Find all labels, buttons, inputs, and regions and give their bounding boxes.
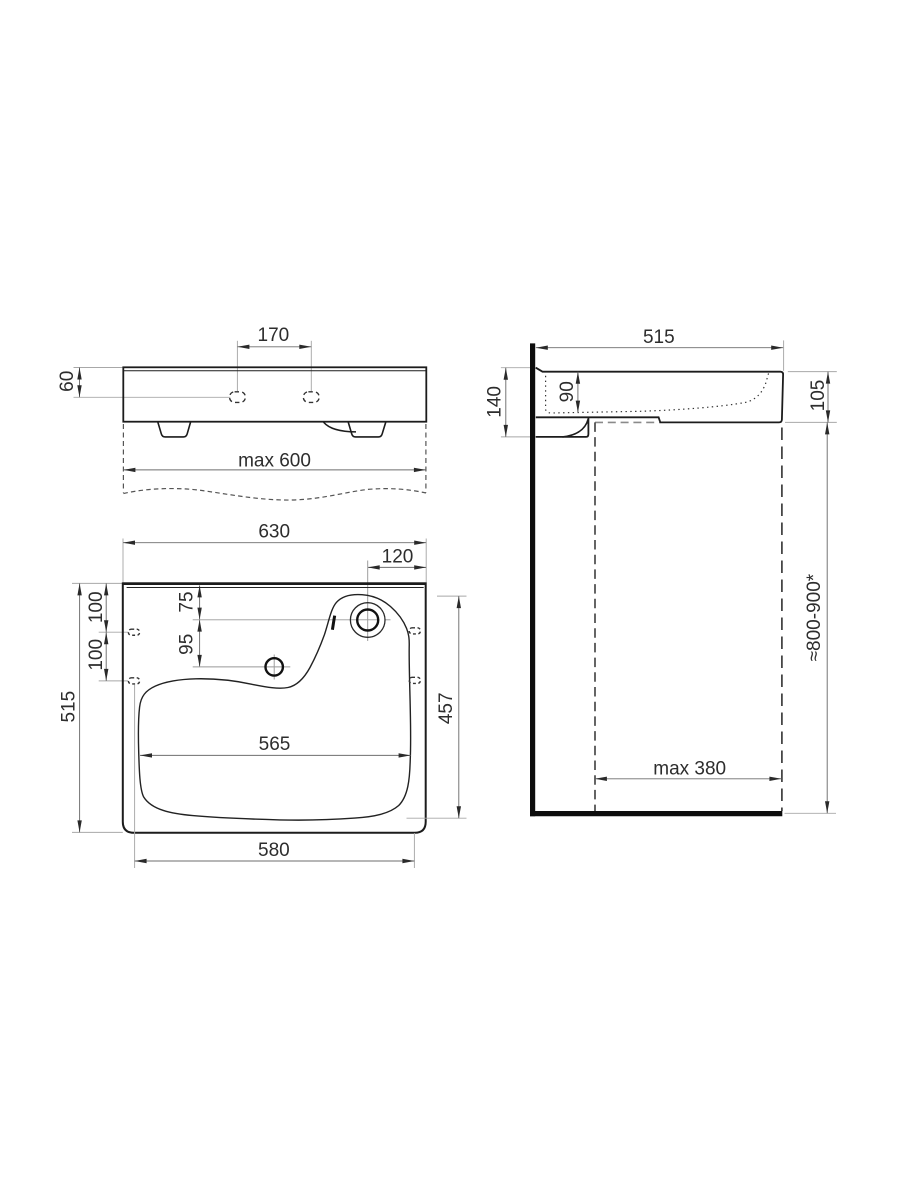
svg-text:60: 60 — [57, 371, 78, 392]
svg-text:515: 515 — [643, 327, 675, 348]
svg-text:max 600: max 600 — [238, 450, 311, 471]
svg-text:580: 580 — [258, 840, 290, 861]
svg-text:90: 90 — [557, 381, 578, 402]
svg-text:75: 75 — [177, 591, 198, 612]
svg-text:≈800-900*: ≈800-900* — [804, 573, 825, 661]
svg-text:170: 170 — [258, 325, 290, 346]
svg-text:565: 565 — [259, 734, 291, 755]
svg-text:120: 120 — [382, 546, 414, 567]
svg-text:95: 95 — [177, 634, 198, 655]
svg-text:630: 630 — [258, 522, 290, 543]
svg-text:100: 100 — [86, 639, 107, 671]
svg-text:100: 100 — [86, 591, 107, 623]
svg-text:457: 457 — [436, 692, 457, 724]
svg-text:105: 105 — [808, 380, 829, 412]
svg-text:140: 140 — [485, 386, 506, 418]
svg-text:515: 515 — [58, 691, 79, 723]
svg-text:max 380: max 380 — [653, 759, 726, 780]
